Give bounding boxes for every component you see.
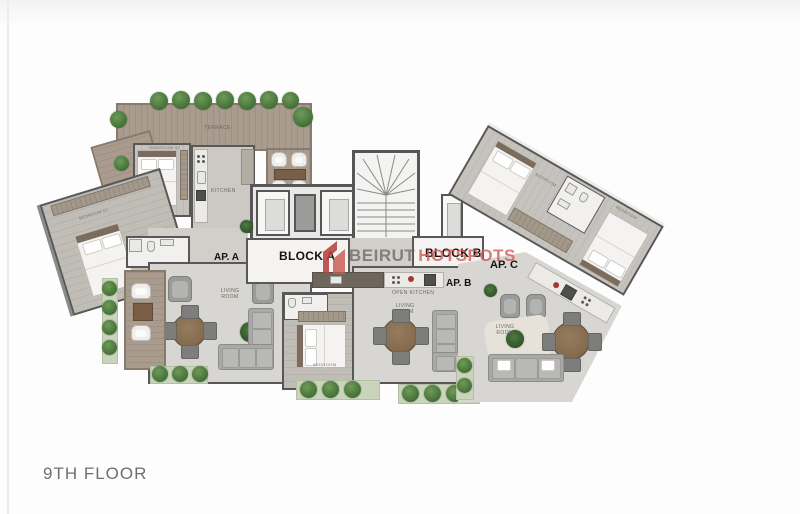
sink-icon <box>302 297 312 304</box>
bush-icon <box>172 366 188 382</box>
stove-icon <box>197 155 205 163</box>
terrace-label: TERRACE <box>204 125 231 131</box>
tree-icon <box>150 92 168 110</box>
sofa <box>248 308 274 348</box>
appliance-icon <box>424 274 436 286</box>
dining-chair <box>373 327 387 345</box>
dining-table <box>382 318 418 354</box>
bush-icon <box>152 366 168 382</box>
apartment-b-label: AP. B <box>446 278 471 289</box>
dining-chair <box>563 358 581 372</box>
beirut-hotspots-logo-icon <box>320 238 346 274</box>
bedroom-01-label: BEDROOM 01 <box>78 207 108 221</box>
lounge-chair <box>131 325 151 341</box>
open-kitchen-label: OPEN KITCHEN <box>392 290 434 296</box>
bush-icon <box>424 385 441 402</box>
watermark-text-hotspots: HOTSPOTS <box>418 246 516 266</box>
bush-icon <box>300 381 317 398</box>
stove-icon <box>581 296 592 307</box>
bush-icon <box>457 378 472 393</box>
armchair <box>500 294 520 318</box>
tree-icon <box>282 92 299 109</box>
plant-icon <box>484 284 497 297</box>
dining-chair <box>392 309 410 323</box>
sofa <box>488 354 564 382</box>
floor-title: 9TH FLOOR <box>43 464 147 484</box>
dining-chair <box>563 312 581 326</box>
appliance-icon <box>560 284 577 301</box>
sofa <box>432 310 458 358</box>
tree-icon <box>114 156 129 171</box>
tree-icon <box>172 91 190 109</box>
tree-icon <box>194 92 212 110</box>
sofa <box>218 344 274 370</box>
armchair <box>168 276 192 302</box>
bush-icon <box>102 281 117 296</box>
tree-icon <box>216 91 234 109</box>
page-top-shade <box>0 0 800 26</box>
lounge-chair <box>271 152 287 167</box>
lounge-chair <box>131 283 151 299</box>
outdoor-table <box>274 169 306 180</box>
bedroom-b-label: BEDROOM <box>313 362 336 367</box>
dining-chair <box>415 327 429 345</box>
oven-icon <box>196 190 206 201</box>
stairs-treads-icon <box>355 153 417 239</box>
dining-chair <box>181 345 199 359</box>
toilet-icon <box>288 298 296 308</box>
living-room-c-label: LIVING ROOM <box>490 324 520 337</box>
bush-icon <box>102 300 117 315</box>
dining-chair <box>203 322 217 340</box>
apartment-a-label: AP. A <box>214 252 239 263</box>
service-shaft <box>294 194 316 232</box>
bed <box>467 140 538 217</box>
tree-icon <box>238 92 256 110</box>
outdoor-table <box>133 303 153 321</box>
floor-plan-screenshot: TERRACE BEDROOM 02 KITCHEN BEDROOM 01 <box>0 0 800 514</box>
tree-icon <box>260 91 278 109</box>
watermark: BEIRUTHOTSPOTS <box>320 238 516 274</box>
stove-icon <box>392 276 400 284</box>
dining-chair <box>181 305 199 319</box>
sink-icon <box>330 276 342 284</box>
dining-chair <box>542 333 556 351</box>
tree-icon <box>110 111 127 128</box>
sink-icon <box>197 171 206 184</box>
kitchen-counter <box>312 272 384 288</box>
watermark-text-beirut: BEIRUT <box>349 246 415 266</box>
kitchen-tall-unit <box>241 149 254 185</box>
bush-icon <box>402 385 419 402</box>
page-edge-line <box>7 0 9 514</box>
kettle-icon <box>408 276 414 282</box>
tree-icon <box>293 107 313 127</box>
elevator-bank <box>250 184 362 242</box>
dining-chair <box>588 333 602 351</box>
bush-icon <box>457 358 472 373</box>
dining-chair <box>392 351 410 365</box>
living-room-a-label: LIVING ROOM <box>214 288 246 301</box>
toilet-icon <box>147 241 155 252</box>
plant-icon <box>240 220 253 233</box>
bush-icon <box>344 381 361 398</box>
sink-icon <box>160 239 174 246</box>
wardrobe <box>180 150 188 200</box>
bedroom-c1-label: BEDROOM <box>535 172 558 188</box>
bush-icon <box>192 366 208 382</box>
elevator <box>320 190 354 236</box>
bush-icon <box>102 340 117 355</box>
elevator <box>256 190 290 236</box>
staircase <box>352 150 420 242</box>
shower-icon <box>129 239 142 252</box>
bush-icon <box>322 381 339 398</box>
kitchen-label: KITCHEN <box>211 188 236 194</box>
wardrobe <box>298 311 346 322</box>
dining-table <box>172 314 206 348</box>
kettle-icon <box>552 281 560 289</box>
bush-icon <box>102 320 117 335</box>
lounge-chair <box>291 152 307 167</box>
